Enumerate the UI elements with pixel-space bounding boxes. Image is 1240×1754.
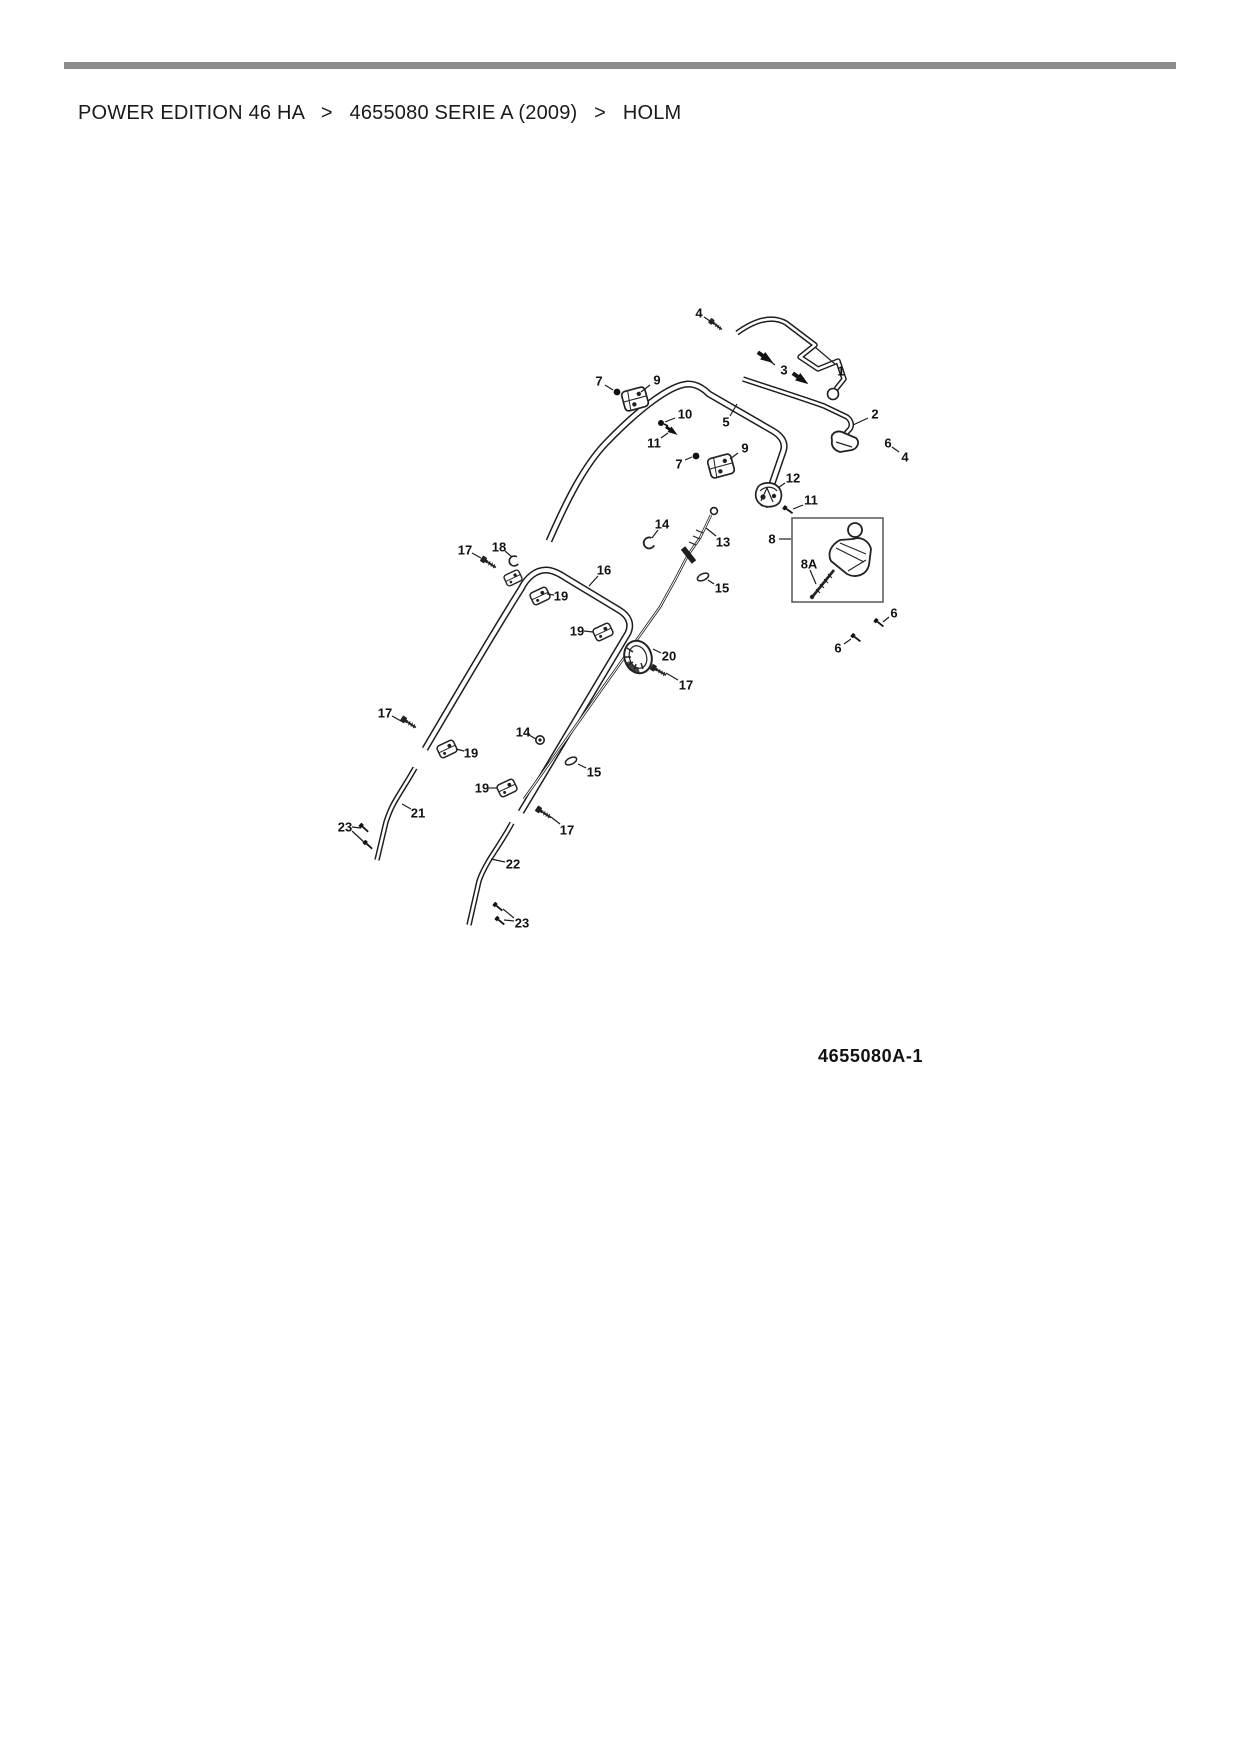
callout-leader-line [685, 457, 692, 460]
callout-leader-line [605, 385, 613, 390]
callout-label-6: 6 [890, 606, 897, 621]
screwdark-icon [494, 916, 505, 927]
screwdark-icon [873, 618, 885, 628]
callout-label-4: 4 [901, 450, 909, 465]
callout-leader-line [491, 859, 505, 862]
callout-label-9: 9 [741, 441, 748, 456]
callout-leader-line [666, 673, 678, 680]
callout-label-12: 12 [786, 471, 800, 486]
lower-bail-part2 [743, 379, 858, 452]
callout-label-17: 17 [560, 823, 574, 838]
clamp19-icon [529, 586, 551, 605]
small-parts-layer [358, 318, 884, 927]
dot-icon [693, 453, 700, 460]
callout-label-8: 8 [768, 532, 775, 547]
screwdark-icon [850, 633, 862, 643]
clamp19-icon [592, 622, 614, 641]
callout-label-14: 14 [655, 517, 670, 532]
callout-leader-line [708, 580, 714, 584]
callout-label-23: 23 [338, 820, 352, 835]
callout-label-19: 19 [570, 624, 584, 639]
callout-leader-line [778, 483, 785, 488]
callout-leader-line [504, 920, 514, 921]
clamp9-icon [707, 453, 735, 479]
callout-leader-line [402, 804, 411, 809]
throttle-lever-part8A [810, 523, 871, 599]
callout-label-6: 6 [884, 436, 891, 451]
callout-label-19: 19 [464, 746, 478, 761]
figure-id: 4655080A-1 [818, 1046, 923, 1066]
clamp19-icon [436, 739, 458, 758]
parts-catalog-page: { "breadcrumb": { "separator": ">", "ite… [0, 0, 1240, 1754]
callout-label-15: 15 [587, 765, 601, 780]
callout-label-8A: 8A [801, 557, 818, 572]
callout-leader-line [810, 570, 816, 584]
oval-icon [564, 756, 578, 767]
upper-bail-part1 [737, 319, 844, 399]
callout-leader-line [844, 639, 851, 644]
callout-leader-line [665, 418, 675, 422]
callout-leader-line [352, 831, 365, 843]
clamp19-icon [496, 778, 518, 797]
callout-label-10: 10 [678, 407, 692, 422]
callout-label-4: 4 [695, 306, 703, 321]
bail-grip [832, 431, 858, 452]
callout-leader-line [661, 433, 668, 438]
callout-label-7: 7 [675, 457, 682, 472]
lower-bar-part22 [469, 823, 512, 925]
screwdark-icon [362, 840, 373, 851]
callout-leader-line [472, 553, 481, 558]
callout-label-22: 22 [506, 857, 520, 872]
callout-label-7: 7 [595, 374, 602, 389]
callout-leader-line [578, 764, 586, 768]
callout-leader-line [392, 716, 401, 721]
callout-leader-line [352, 827, 361, 828]
clip-icon [508, 556, 518, 567]
part12-icon [756, 483, 782, 507]
callout-label-14: 14 [516, 725, 531, 740]
callout-label-15: 15 [715, 581, 729, 596]
exploded-parts-diagram: 431264791011579121188A141315171816191920… [0, 0, 1240, 1754]
callout-label-20: 20 [662, 649, 676, 664]
callout-leader-line [589, 576, 598, 586]
callout-label-6: 6 [834, 641, 841, 656]
callout-label-11: 11 [647, 436, 661, 451]
clip-icon [642, 536, 654, 550]
callout-label-16: 16 [597, 563, 611, 578]
callout-label-1: 1 [837, 364, 844, 379]
callout-label-9: 9 [653, 373, 660, 388]
callout-leader-line [793, 505, 803, 509]
dot-icon [614, 389, 621, 396]
screwdark-icon [782, 505, 794, 515]
callout-label-17: 17 [378, 706, 392, 721]
callout-leader-line [706, 528, 716, 536]
callout-label-19: 19 [554, 589, 568, 604]
callout-label-13: 13 [716, 535, 730, 550]
screw-icon [480, 555, 498, 570]
callout-label-17: 17 [679, 678, 693, 693]
pin-icon [790, 370, 811, 388]
callout-label-23: 23 [515, 916, 529, 931]
screw-icon [708, 318, 724, 332]
screw-icon [535, 805, 553, 820]
callout-label-17: 17 [458, 543, 472, 558]
callout-label-2: 2 [871, 407, 878, 422]
callout-leader-line [551, 817, 560, 824]
callout-label-21: 21 [411, 806, 425, 821]
lower-bar-part21 [377, 768, 415, 860]
screw-icon [650, 664, 668, 678]
callout-leader-line [503, 909, 514, 918]
oval-icon [696, 572, 710, 583]
callout-leader-line [883, 617, 889, 622]
callout-label-5: 5 [722, 415, 729, 430]
callout-label-18: 18 [492, 540, 506, 555]
callout-leader-line [584, 631, 593, 632]
callout-leader-line [892, 447, 899, 452]
callout-leader-line [653, 649, 661, 653]
screw-icon [400, 715, 418, 730]
screwdark-icon [492, 902, 503, 913]
callout-label-3: 3 [780, 363, 787, 378]
bail-end-hook [828, 389, 839, 400]
callout-label-11: 11 [804, 493, 818, 508]
nut-icon [536, 736, 544, 744]
callout-leader-line [853, 418, 868, 425]
callout-label-19: 19 [475, 781, 489, 796]
callout-leader-line [815, 347, 835, 364]
